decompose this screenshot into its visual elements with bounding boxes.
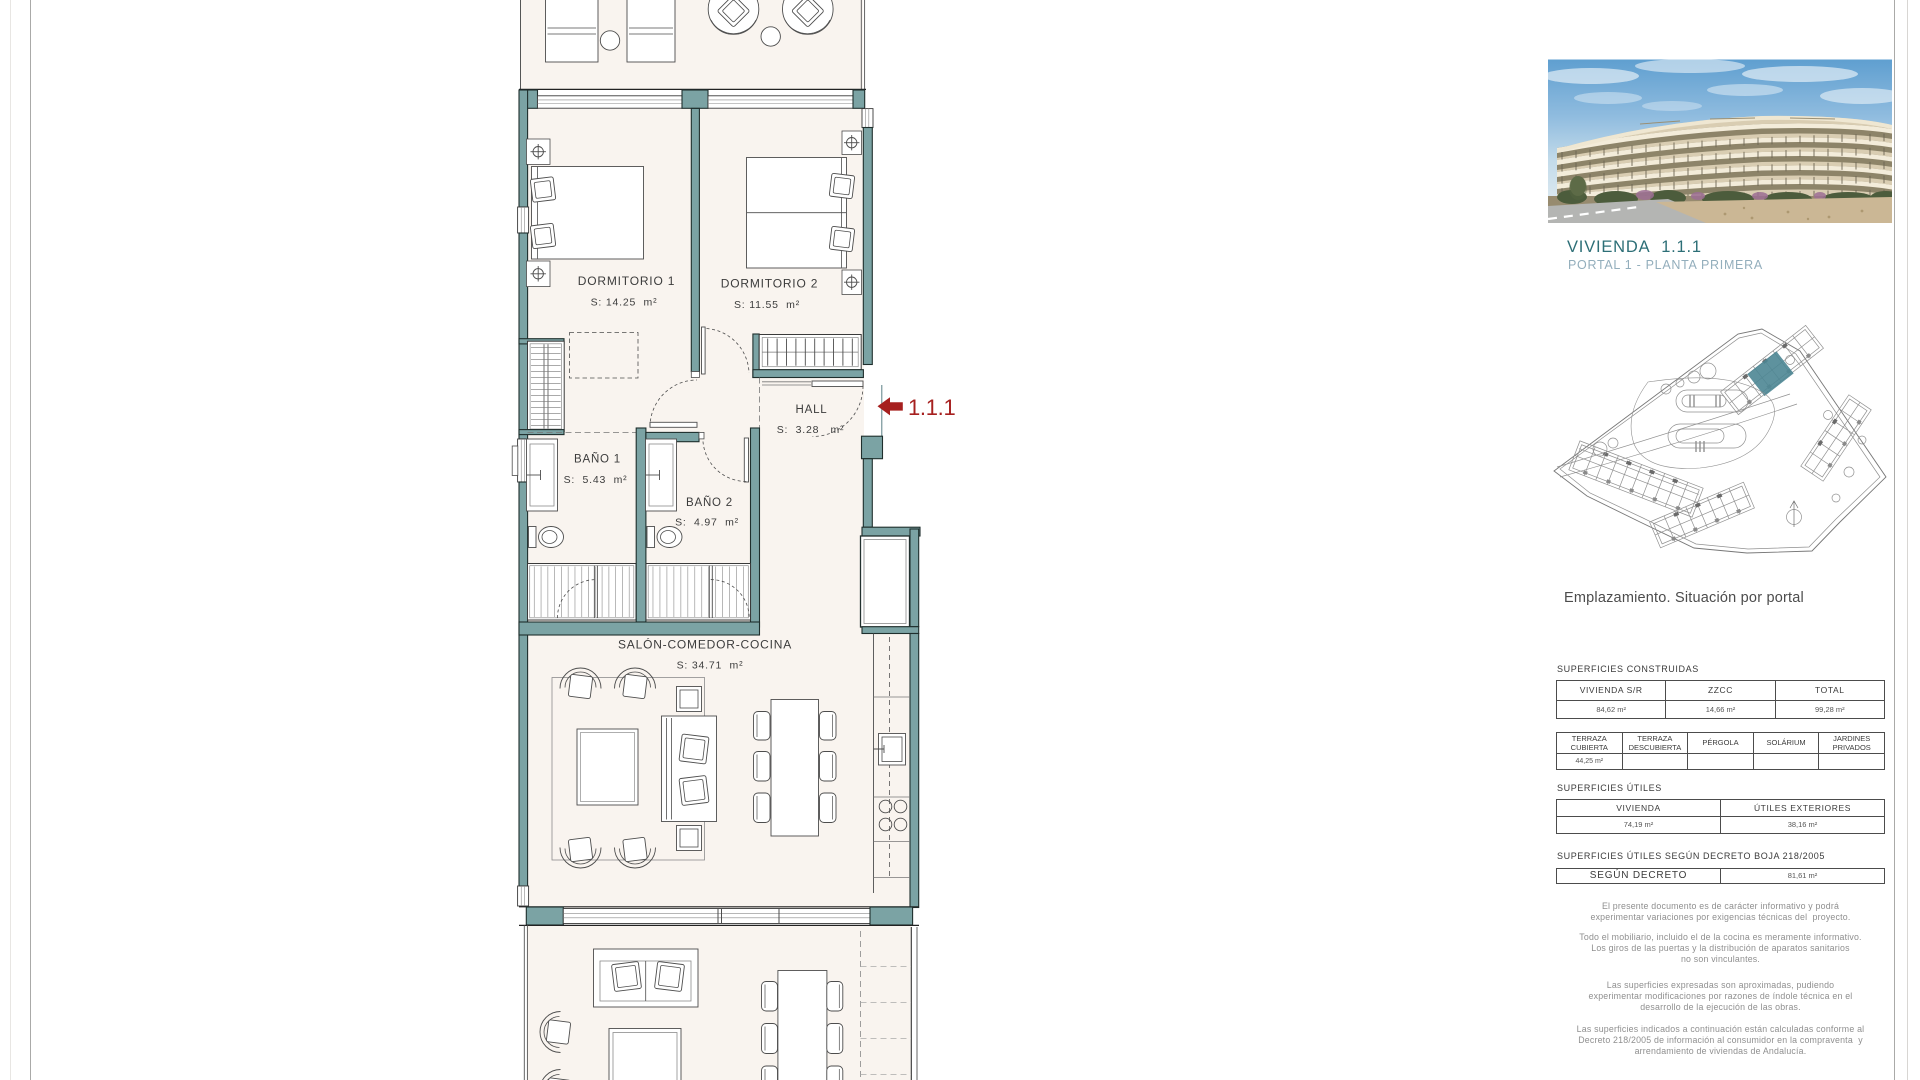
svg-text:S: 4.97 m²: S: 4.97 m² (675, 517, 739, 529)
svg-text:SALÓN-COMEDOR-COCINA: SALÓN-COMEDOR-COCINA (618, 637, 792, 652)
svg-text:HALL: HALL (796, 404, 828, 416)
svg-text:S: 14.25 m²: S: 14.25 m² (591, 297, 658, 309)
svg-text:1.1.1: 1.1.1 (908, 395, 955, 420)
svg-text:DORMITORIO 2: DORMITORIO 2 (721, 277, 818, 291)
svg-text:BAÑO 2: BAÑO 2 (686, 496, 733, 509)
svg-text:BAÑO 1: BAÑO 1 (574, 453, 621, 466)
svg-text:DORMITORIO 1: DORMITORIO 1 (578, 274, 675, 288)
svg-text:S: 34.71 m²: S: 34.71 m² (677, 660, 744, 672)
svg-text:S: 3.28 m²: S: 3.28 m² (777, 424, 845, 436)
svg-text:S: 11.55 m²: S: 11.55 m² (734, 299, 800, 311)
svg-text:S: 5.43 m²: S: 5.43 m² (564, 474, 628, 486)
